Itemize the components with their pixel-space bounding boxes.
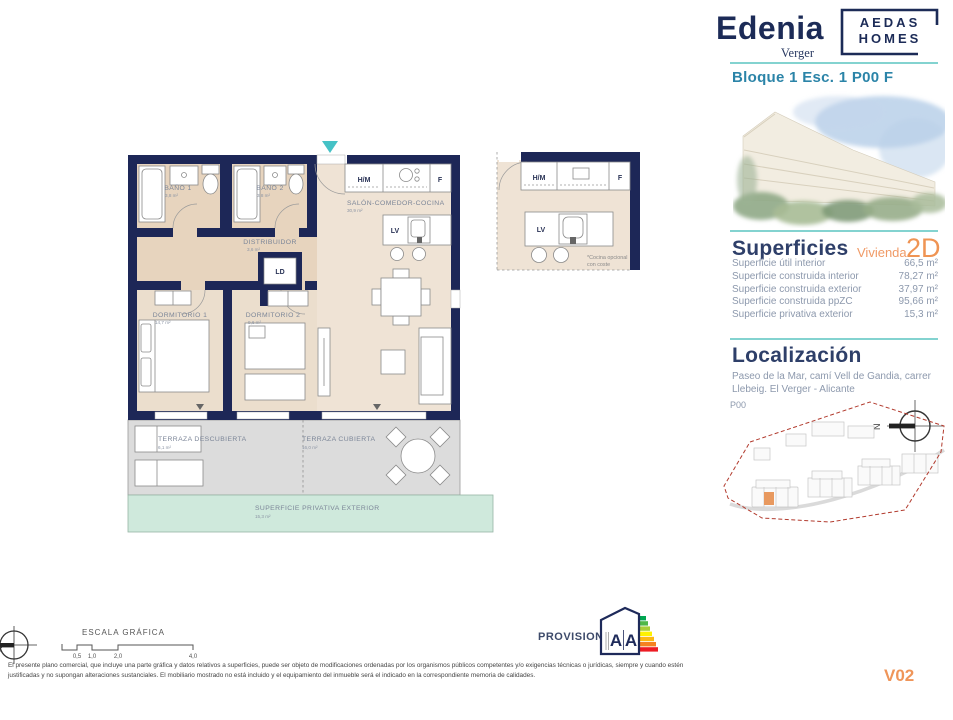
- scale-tick: 2,0: [114, 654, 123, 660]
- superficie-row: Superficie construida ppZC 95,66 m²: [732, 296, 938, 309]
- inset-f-label: F: [618, 175, 623, 182]
- ld-label: LD: [275, 269, 284, 276]
- lv-label: LV: [391, 228, 400, 235]
- tv-unit: [318, 328, 330, 396]
- distribuidor-area: 3,6 m²: [247, 247, 260, 252]
- superficie-value: 95,66 m²: [899, 296, 938, 309]
- aedas-homes-logo: AEDAS HOMES: [840, 8, 940, 56]
- brand-title: Edenia: [716, 10, 816, 47]
- legal-disclaimer: El presente plano comercial, que incluye…: [8, 661, 684, 681]
- ld-closet: LD: [258, 252, 302, 290]
- inset-note-line1: *Cocina opcional: [587, 255, 627, 261]
- localizacion-title: Localización: [732, 344, 862, 368]
- scale-tick: 0,5: [73, 654, 82, 660]
- bano1-label: BAÑO 1: [164, 183, 191, 192]
- highlighted-unit: [764, 492, 774, 505]
- scale-title: ESCALA GRÁFICA: [82, 628, 165, 637]
- bano2-label: BAÑO 2: [256, 183, 283, 192]
- scale-tick: 4,0: [189, 654, 198, 660]
- scale-bar: 0,5 1,0 2,0 4,0: [60, 640, 205, 660]
- dorm2-area: 9,6 m²: [248, 320, 261, 325]
- terraza-cubierta-area: 16,0 m²: [302, 445, 318, 450]
- bano1-area: 3,8 m²: [165, 193, 178, 198]
- block-reference: Bloque 1 Esc. 1 P00 F: [732, 69, 893, 86]
- aedas-logo-line2: HOMES: [840, 31, 940, 46]
- salon-area: 30,9 m²: [347, 208, 363, 213]
- superficies-table: Superficie útil interior 66,5 m² Superfi…: [732, 258, 938, 322]
- energy-letter: A: [625, 631, 637, 650]
- superficie-row: Superficie construida interior 78,27 m²: [732, 271, 938, 284]
- distribuidor-label: DISTRIBUIDOR: [243, 239, 297, 246]
- header-divider: [730, 62, 938, 64]
- superficie-value: 78,27 m²: [899, 271, 938, 284]
- inset-note-line2: con coste: [587, 262, 610, 268]
- superficie-value: 37,97 m²: [899, 284, 938, 297]
- inset-hm-label: H/M: [533, 175, 546, 182]
- superficies-divider: [730, 230, 938, 232]
- inset-lv-label: LV: [537, 227, 546, 234]
- superficie-row: Superficie construida exterior 37,97 m²: [732, 284, 938, 297]
- localizacion-divider: [730, 338, 938, 340]
- stool: [554, 248, 569, 263]
- privativa-label: SUPERFICIE PRIVATIVA EXTERIOR: [255, 505, 380, 512]
- site-buildings: [730, 422, 944, 509]
- dorm1-area: 14,7 m²: [155, 320, 171, 325]
- plan-sheet: Edenia Verger AEDAS HOMES Bloque 1 Esc. …: [0, 0, 953, 720]
- building-render-image: [733, 90, 945, 228]
- kitchen-inset: H/M F LV *Cocina opcional con coste: [497, 152, 640, 270]
- floor-plan: LD: [125, 138, 655, 538]
- floor-label: P00: [730, 400, 746, 410]
- f-label: F: [438, 177, 443, 184]
- terraza-descubierta-area: 6,1 m²: [158, 445, 171, 450]
- stool: [413, 248, 426, 261]
- site-compass-icon: N: [872, 400, 943, 452]
- compass-north-letter: N: [0, 646, 4, 652]
- scale-tick: 1,0: [88, 654, 97, 660]
- version-label: V02: [884, 666, 914, 686]
- terraza-cubierta-label: TERRAZA CUBIERTA: [302, 436, 375, 443]
- energy-letter: A: [610, 631, 622, 650]
- entrance-marker-icon: [322, 141, 338, 153]
- energy-rating-icon: A A: [597, 604, 659, 660]
- superficie-label: Superficie construida ppZC: [732, 296, 853, 309]
- superficie-label: Superficie construida exterior: [732, 284, 862, 297]
- superficie-label: Superficie construida interior: [732, 271, 859, 284]
- superficie-label: Superficie útil interior: [732, 258, 825, 271]
- brand-subtitle: Verger: [718, 46, 814, 61]
- sofa: [419, 328, 451, 404]
- site-plan: P00 N: [712, 392, 953, 535]
- terraza-descubierta-label: TERRAZA DESCUBIERTA: [158, 436, 247, 443]
- superficie-row: Superficie útil interior 66,5 m²: [732, 258, 938, 271]
- stool: [532, 248, 547, 263]
- superficie-row: Superficie privativa exterior 15,3 m²: [732, 309, 938, 322]
- aedas-logo-line1: AEDAS: [840, 15, 940, 30]
- stool: [391, 248, 404, 261]
- private-exterior-zone: [128, 495, 493, 532]
- superficie-value: 66,5 m²: [904, 258, 938, 271]
- salon-label: SALÓN-COMEDOR-COCINA: [347, 198, 445, 207]
- privativa-area: 15,3 m²: [255, 514, 271, 519]
- bano2-area: 3,8 m²: [257, 193, 270, 198]
- hm-label: H/M: [358, 177, 371, 184]
- footer-compass-icon: N: [0, 626, 40, 664]
- faucet-icon: [417, 237, 422, 243]
- coffee-table: [381, 350, 405, 374]
- dorm1-label: DORMITORIO 1: [153, 312, 208, 319]
- superficie-value: 15,3 m²: [904, 309, 938, 322]
- superficie-label: Superficie privativa exterior: [732, 309, 853, 322]
- dorm2-label: DORMITORIO 2: [246, 312, 301, 319]
